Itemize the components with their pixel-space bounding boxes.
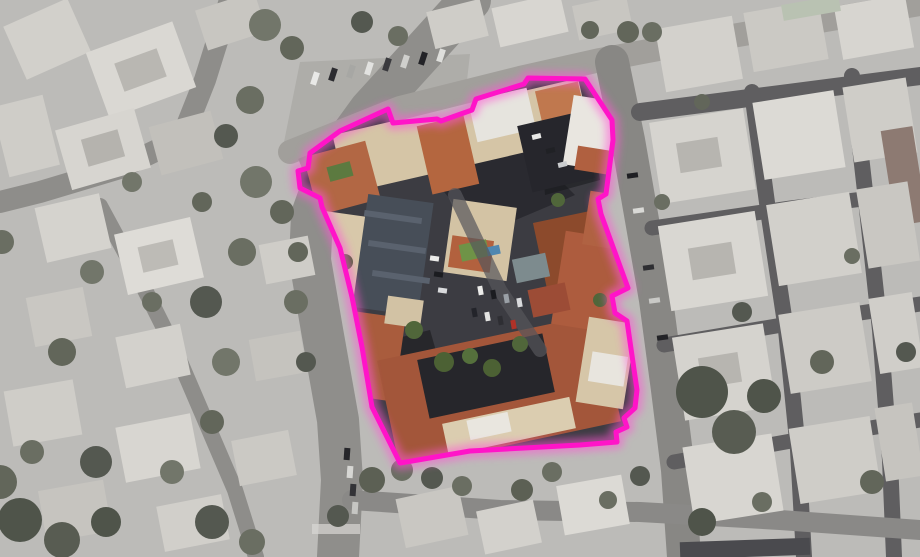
map-canvas <box>0 0 920 557</box>
aerial-map-screenshot <box>0 0 920 557</box>
